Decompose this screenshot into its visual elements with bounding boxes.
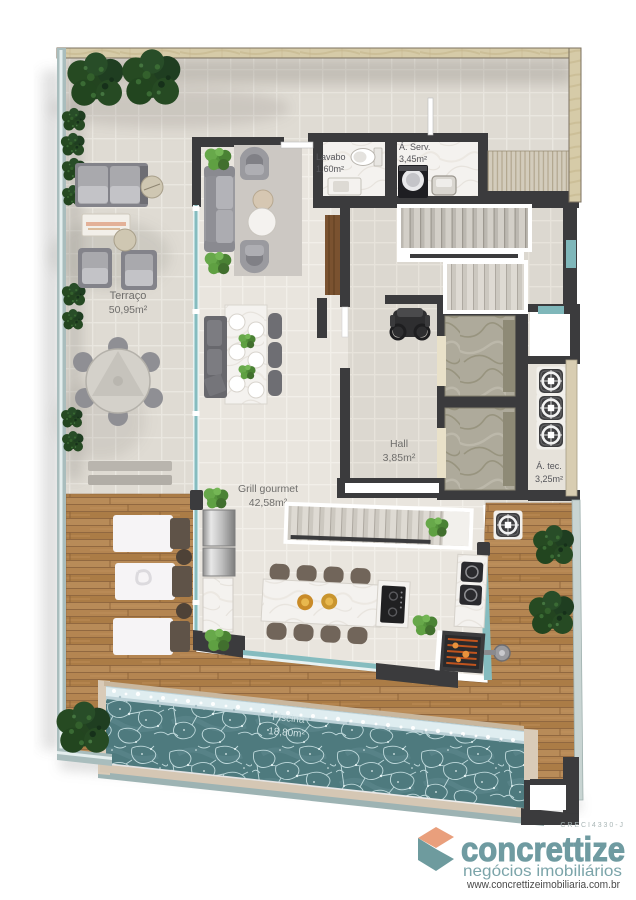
svg-text:Terraço: Terraço	[110, 290, 147, 302]
svg-text:C R E C I 4 3 3 0 - J: C R E C I 4 3 3 0 - J	[560, 822, 623, 829]
svg-text:3,85m²: 3,85m²	[383, 452, 416, 464]
svg-text:42,58m²: 42,58m²	[249, 497, 288, 509]
svg-text:50,95m²: 50,95m²	[109, 304, 148, 316]
svg-text:Lavabo: Lavabo	[316, 152, 346, 162]
svg-text:Á. Serv.: Á. Serv.	[399, 142, 430, 152]
svg-text:1,60m²: 1,60m²	[316, 164, 344, 174]
svg-text:3,25m²: 3,25m²	[535, 474, 563, 484]
svg-text:www.concrettizeimobiliaria.com: www.concrettizeimobiliaria.com.br	[466, 879, 620, 891]
svg-text:Hall: Hall	[390, 438, 408, 450]
svg-text:negócios imobiliários: negócios imobiliários	[463, 863, 622, 880]
svg-text:Á. tec.: Á. tec.	[536, 461, 562, 471]
svg-text:Grill gourmet: Grill gourmet	[238, 483, 298, 495]
svg-text:3,45m²: 3,45m²	[399, 154, 427, 164]
